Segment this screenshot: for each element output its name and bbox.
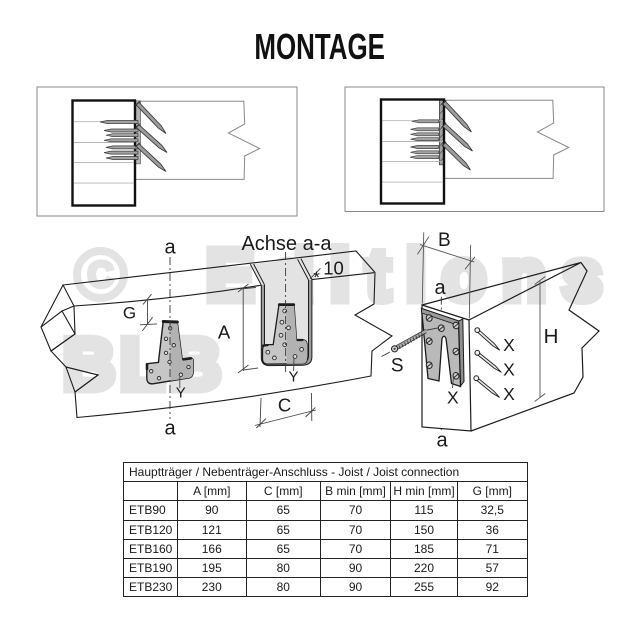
svg-text:X: X [503, 335, 515, 355]
svg-text:a: a [434, 277, 446, 299]
svg-text:H: H [544, 325, 559, 348]
svg-text:S: S [391, 356, 404, 377]
svg-text:X: X [447, 388, 459, 408]
svg-text:a: a [164, 418, 176, 440]
svg-text:B: B [438, 230, 451, 251]
svg-text:a: a [436, 429, 448, 451]
svg-text:*: * [313, 268, 320, 287]
svg-text:C: C [88, 254, 114, 295]
svg-text:C: C [278, 395, 291, 416]
svg-text:BLB: BLB [63, 325, 226, 405]
svg-text:Y: Y [176, 385, 186, 402]
svg-text:X: X [503, 384, 515, 404]
svg-text:A: A [218, 322, 231, 343]
svg-text:G: G [123, 303, 136, 322]
svg-text:X: X [503, 360, 515, 380]
svg-text:Y: Y [288, 369, 298, 386]
svg-text:Achse a-a: Achse a-a [241, 233, 332, 255]
svg-text:10: 10 [323, 258, 344, 279]
svg-text:a: a [164, 237, 176, 259]
